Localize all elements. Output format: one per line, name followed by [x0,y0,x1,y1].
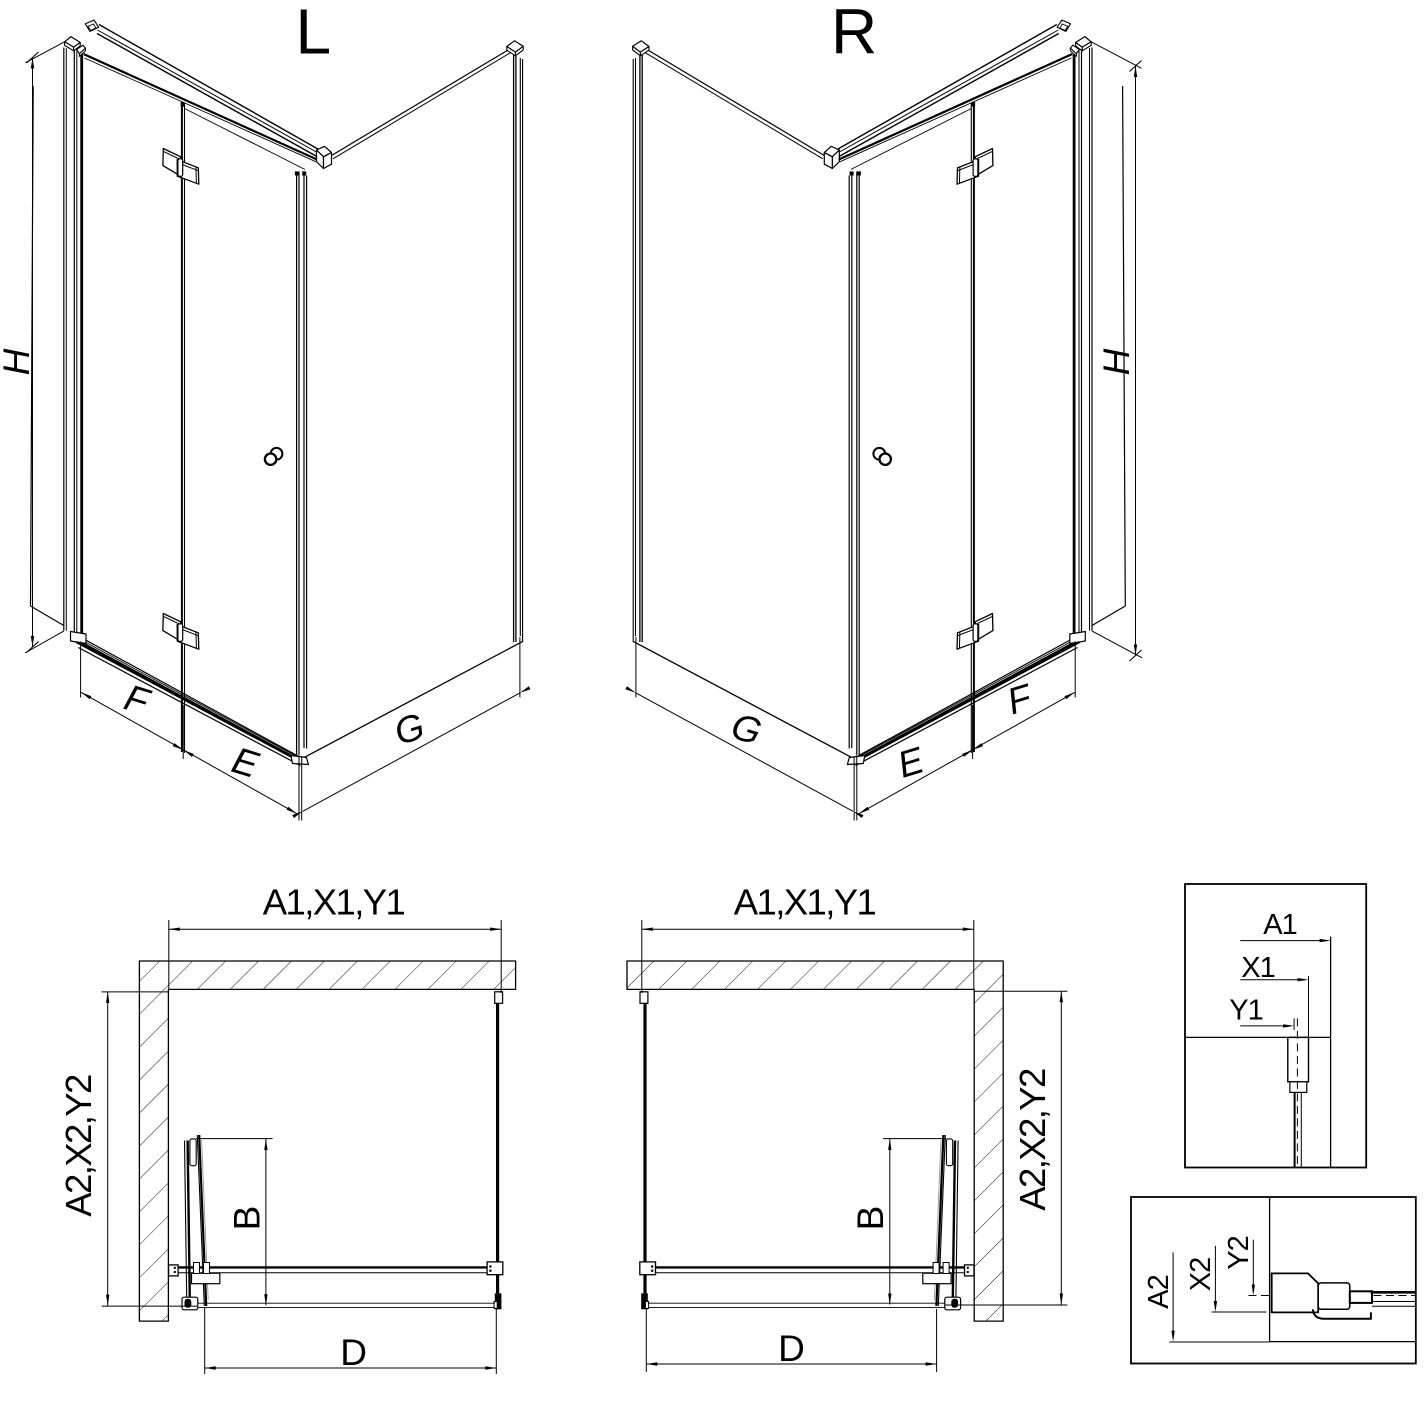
svg-text:H: H [0,348,37,375]
svg-text:D: D [340,1332,367,1373]
svg-text:Y1: Y1 [1229,994,1262,1026]
svg-text:A2: A2 [1143,1275,1175,1308]
svg-text:A1,X1,Y1: A1,X1,Y1 [734,881,876,922]
svg-text:D: D [778,1328,805,1369]
svg-text:Y2: Y2 [1223,1236,1255,1269]
svg-text:A1: A1 [1263,909,1296,941]
svg-text:B: B [227,1206,268,1231]
svg-text:B: B [850,1206,891,1231]
svg-text:L: L [296,0,332,68]
svg-text:A2,X2,Y2: A2,X2,Y2 [1012,1069,1053,1211]
svg-text:X2: X2 [1185,1258,1217,1291]
svg-text:H: H [1096,348,1137,375]
svg-text:A2,X2,Y2: A2,X2,Y2 [58,1075,99,1217]
svg-text:A1,X1,Y1: A1,X1,Y1 [263,881,405,922]
svg-text:R: R [831,0,877,68]
